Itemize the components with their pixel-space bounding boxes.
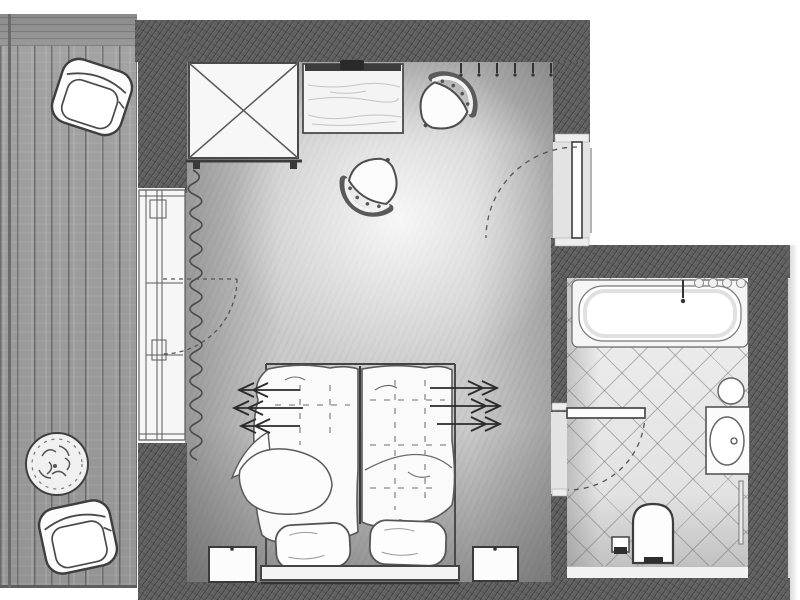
towel-rail [739,481,743,544]
bathroom-door [552,403,645,496]
entrance-door [486,134,591,246]
toilet [612,504,673,563]
window-frame [139,190,185,440]
armchair-north [48,54,137,139]
plan-linework [0,0,800,600]
wardrobe [186,63,302,169]
potted-plant [26,433,88,495]
desk-chair-1 [404,65,484,145]
floor-plan [0,0,800,600]
entrance-door-arc [486,147,577,238]
armchair-south [36,497,120,577]
pillow-left [275,522,351,570]
bathroom-door-leaf [567,408,645,418]
bed-arrows-left [234,383,303,433]
desk-chair-2 [335,144,412,223]
bathtub [572,279,748,348]
nightstand-right [473,547,518,581]
wall-hook-ticks [459,63,552,77]
bed-arrows-right [430,381,500,431]
washbasin-vanity [706,407,750,474]
wall-accessory [718,378,744,404]
bathroom-door-arc [568,413,645,490]
tv-ledge [340,60,364,70]
curtain [188,170,202,460]
headboard [261,566,459,580]
pillow-right [369,520,446,567]
entrance-door-leaf [572,142,582,238]
nightstand-left [209,547,256,582]
desk [303,60,403,133]
